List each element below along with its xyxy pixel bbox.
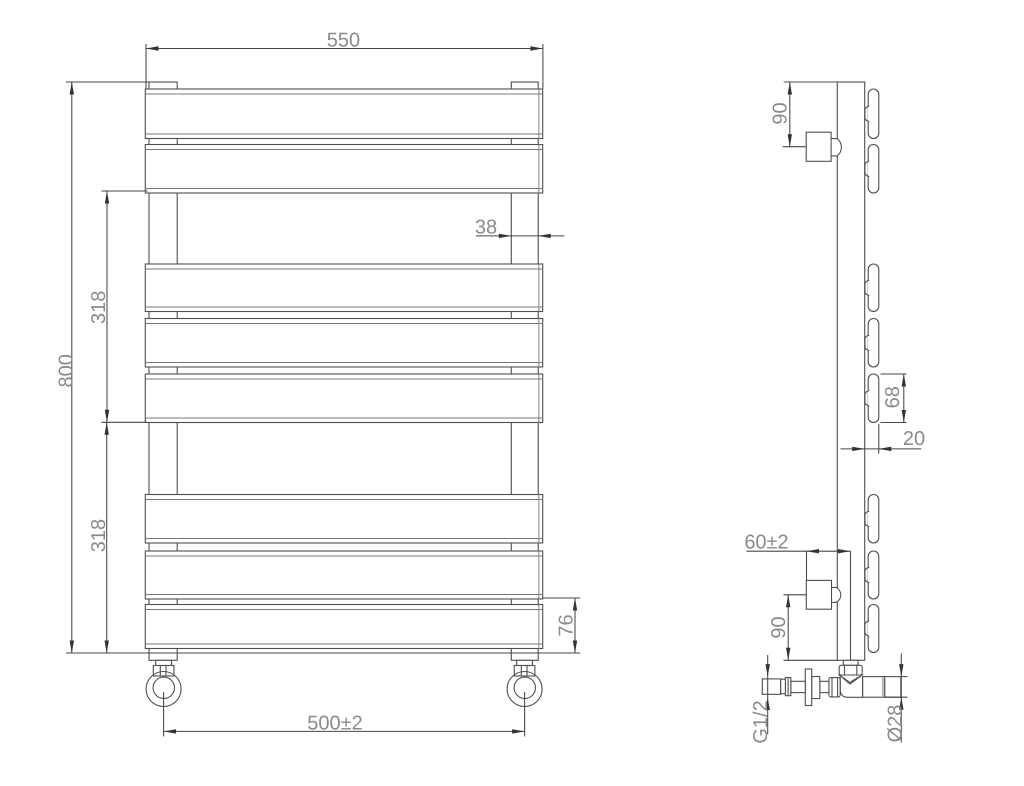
svg-text:500±2: 500±2: [307, 713, 362, 735]
svg-text:90: 90: [770, 102, 792, 124]
svg-text:318: 318: [88, 291, 110, 324]
svg-text:550: 550: [327, 30, 360, 52]
svg-text:G1/2: G1/2: [750, 700, 772, 743]
svg-text:800: 800: [56, 354, 78, 387]
svg-text:318: 318: [88, 519, 110, 552]
svg-text:76: 76: [555, 614, 577, 636]
svg-text:Ø28: Ø28: [885, 705, 907, 743]
svg-text:68: 68: [882, 386, 904, 408]
svg-text:38: 38: [475, 217, 497, 239]
svg-text:20: 20: [903, 428, 925, 450]
svg-text:90: 90: [768, 616, 790, 638]
svg-text:60±2: 60±2: [744, 532, 788, 554]
